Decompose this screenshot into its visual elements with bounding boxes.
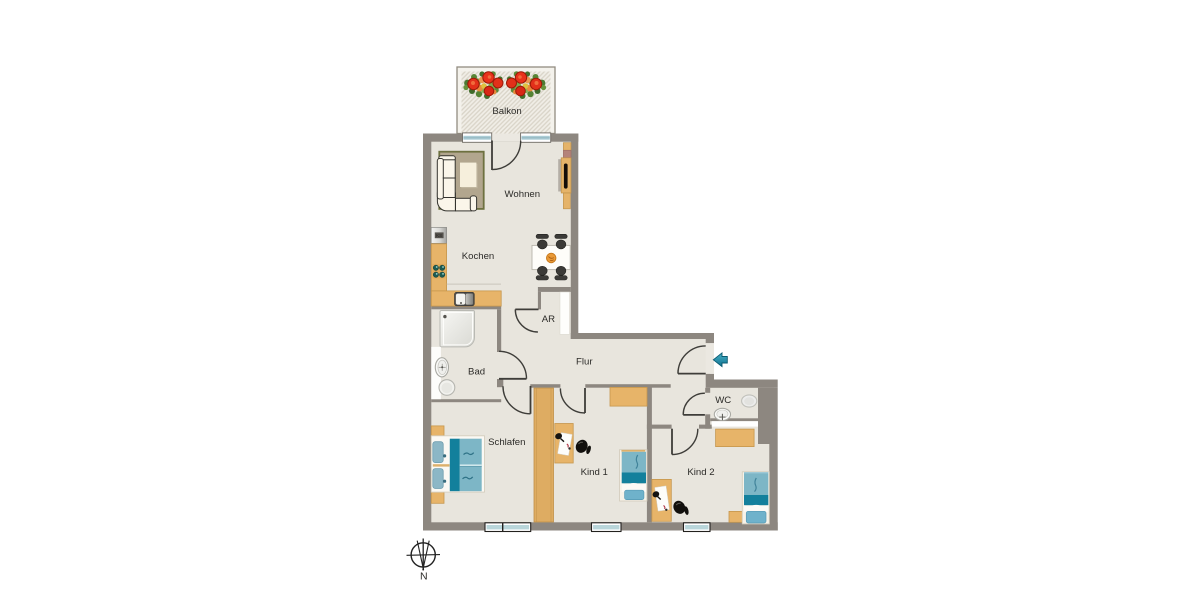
svg-text:Bad: Bad: [468, 367, 485, 378]
svg-text:KS: KS: [436, 233, 442, 239]
svg-text:N: N: [420, 571, 428, 583]
svg-text:Kind 1: Kind 1: [581, 467, 608, 478]
svg-text:Flur: Flur: [576, 356, 593, 367]
svg-text:AR: AR: [542, 314, 555, 325]
svg-text:Wohnen: Wohnen: [505, 189, 541, 200]
svg-text:WC: WC: [715, 395, 731, 406]
svg-text:Kochen: Kochen: [462, 251, 495, 262]
svg-text:Schlafen: Schlafen: [488, 437, 525, 448]
svg-text:Kind 2: Kind 2: [687, 467, 714, 478]
svg-text:Balkon: Balkon: [492, 106, 521, 117]
